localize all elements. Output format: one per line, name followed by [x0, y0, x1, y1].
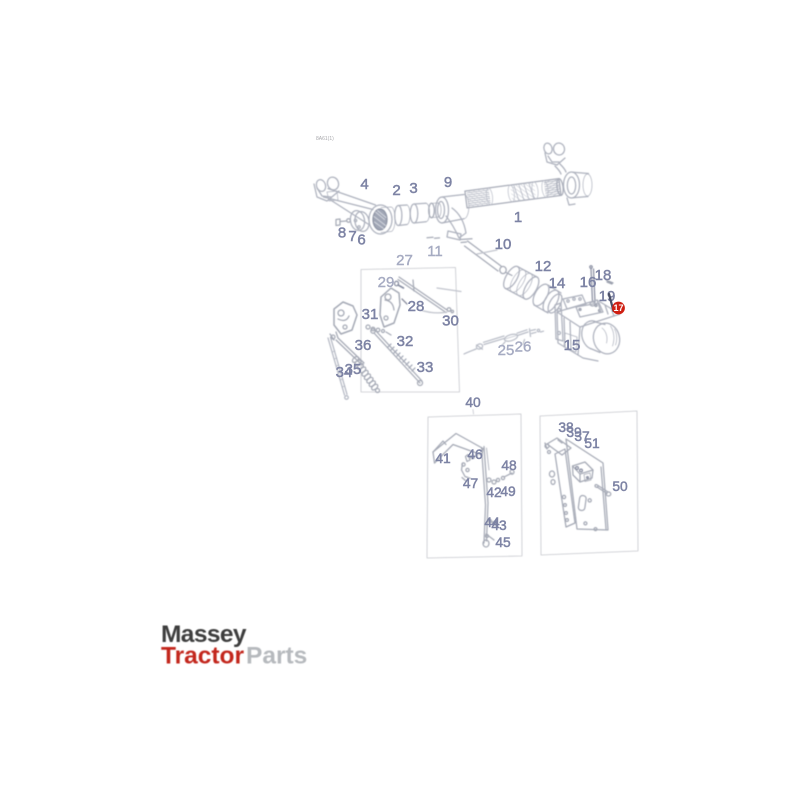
- svg-text:15: 15: [564, 337, 581, 354]
- svg-text:11: 11: [427, 243, 443, 260]
- svg-text:31: 31: [362, 306, 379, 323]
- svg-text:35: 35: [345, 361, 362, 378]
- svg-text:1: 1: [514, 209, 522, 226]
- svg-text:7: 7: [348, 228, 356, 245]
- svg-text:39: 39: [566, 425, 582, 440]
- svg-text:4: 4: [360, 176, 368, 193]
- svg-text:10: 10: [495, 236, 512, 253]
- svg-text:18: 18: [595, 267, 612, 284]
- svg-text:26: 26: [515, 339, 532, 356]
- svg-text:17: 17: [613, 303, 623, 313]
- svg-text:14: 14: [549, 275, 566, 292]
- svg-text:47: 47: [463, 476, 478, 491]
- svg-text:29: 29: [378, 274, 395, 291]
- svg-text:Parts: Parts: [246, 643, 307, 670]
- svg-text:45: 45: [495, 535, 511, 550]
- svg-text:2: 2: [392, 182, 400, 199]
- svg-text:50: 50: [612, 479, 628, 494]
- svg-text:25: 25: [498, 342, 515, 359]
- svg-text:28: 28: [408, 298, 425, 315]
- svg-text:32: 32: [397, 333, 414, 350]
- svg-text:6: 6: [357, 232, 365, 249]
- svg-text:8A61(1): 8A61(1): [316, 136, 334, 142]
- svg-text:30: 30: [442, 313, 459, 330]
- svg-text:3: 3: [409, 180, 417, 197]
- svg-text:36: 36: [355, 337, 372, 354]
- svg-text:8: 8: [338, 225, 346, 242]
- svg-text:48: 48: [501, 458, 517, 473]
- svg-text:27: 27: [396, 252, 413, 269]
- svg-text:9: 9: [444, 174, 452, 191]
- svg-text:12: 12: [535, 258, 552, 275]
- svg-text:33: 33: [417, 359, 434, 376]
- svg-text:44: 44: [484, 515, 500, 530]
- svg-text:41: 41: [435, 451, 450, 466]
- svg-text:Tractor: Tractor: [161, 643, 245, 670]
- svg-text:46: 46: [467, 447, 483, 462]
- svg-text:40: 40: [465, 395, 481, 410]
- svg-text:49: 49: [500, 484, 516, 499]
- svg-text:51: 51: [584, 436, 599, 451]
